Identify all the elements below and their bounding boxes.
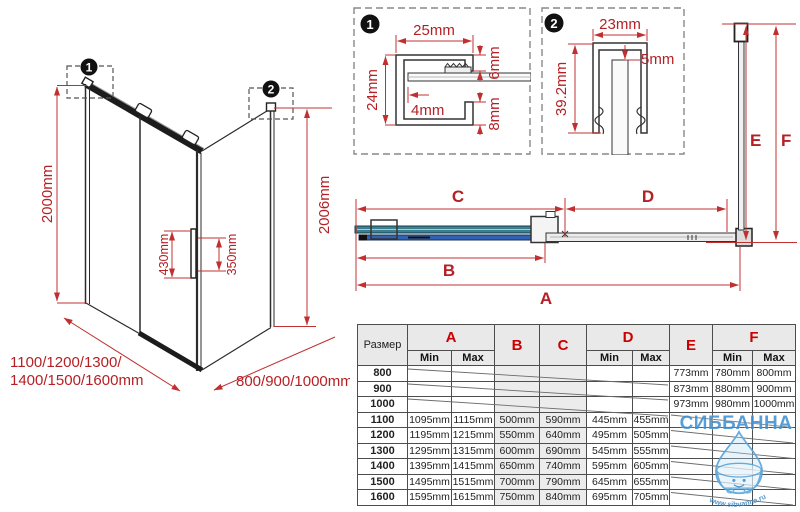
size-cell: 1100 bbox=[358, 412, 408, 428]
value-cell: 655mm bbox=[633, 474, 670, 490]
table-row: 11001095mm1115mm500mm590mm445mm455mm bbox=[358, 412, 796, 428]
value-cell: 690mm bbox=[540, 443, 587, 459]
value-cell: 1195mm bbox=[408, 428, 452, 444]
column-header-e: E bbox=[670, 325, 713, 366]
value-cell bbox=[713, 428, 753, 444]
value-cell bbox=[753, 443, 796, 459]
value-cell: 1295mm bbox=[408, 443, 452, 459]
value-cell: 695mm bbox=[587, 490, 633, 506]
size-cell: 1400 bbox=[358, 459, 408, 475]
value-cell: 1215mm bbox=[452, 428, 495, 444]
enclosure-structure bbox=[82, 77, 276, 371]
dim-c-label: C bbox=[452, 187, 464, 206]
value-cell bbox=[408, 381, 452, 397]
subheader-a-min: Min bbox=[408, 351, 452, 366]
value-cell: 980mm bbox=[713, 397, 753, 413]
value-cell: 1415mm bbox=[452, 459, 495, 475]
detail-callout-1: 1 25mm 24mm 6mm 8mm 4mm bbox=[353, 7, 531, 155]
value-cell: 590mm bbox=[540, 412, 587, 428]
size-table: Размер A B C D E F Min Max Min Max Min M… bbox=[357, 324, 796, 506]
detail-callout-2: 2 23mm 5mm 39.2mm bbox=[541, 7, 685, 155]
value-cell bbox=[452, 397, 495, 413]
value-cell: 1595mm bbox=[408, 490, 452, 506]
dim-a-label: A bbox=[540, 289, 552, 308]
value-cell: 740mm bbox=[540, 459, 587, 475]
value-cell bbox=[670, 412, 713, 428]
value-cell bbox=[587, 381, 633, 397]
value-cell: 495mm bbox=[587, 428, 633, 444]
value-cell bbox=[408, 397, 452, 413]
value-cell: 595mm bbox=[587, 459, 633, 475]
value-cell: 605mm bbox=[633, 459, 670, 475]
value-cell bbox=[540, 366, 587, 382]
value-cell: 1615mm bbox=[452, 490, 495, 506]
value-cell bbox=[633, 366, 670, 382]
value-cell bbox=[753, 474, 796, 490]
door-handle bbox=[191, 229, 196, 278]
value-cell bbox=[495, 397, 540, 413]
detail-1-drawing: 1 25mm 24mm 6mm 8mm 4mm bbox=[353, 7, 531, 155]
value-cell: 790mm bbox=[540, 474, 587, 490]
value-cell: 1115mm bbox=[452, 412, 495, 428]
table-row: 900873mm880mm900mm bbox=[358, 381, 796, 397]
value-cell bbox=[713, 490, 753, 506]
size-column-header: Размер bbox=[358, 325, 408, 366]
column-header-c: C bbox=[540, 325, 587, 366]
front-widths-line1: 1100/1200/1300/ bbox=[10, 354, 122, 371]
subheader-d-max: Max bbox=[633, 351, 670, 366]
value-cell bbox=[633, 381, 670, 397]
column-header-f: F bbox=[713, 325, 796, 351]
value-cell: 773mm bbox=[670, 366, 713, 382]
size-cell: 1500 bbox=[358, 474, 408, 490]
value-cell bbox=[587, 366, 633, 382]
value-cell bbox=[753, 428, 796, 444]
subheader-f-min: Min bbox=[713, 351, 753, 366]
detail-1-dim-top: 25mm bbox=[413, 22, 455, 39]
detail-1-dim-left: 24mm bbox=[364, 69, 381, 111]
value-cell: 750mm bbox=[495, 490, 540, 506]
value-cell: 1000mm bbox=[753, 397, 796, 413]
table-row: 16001595mm1615mm750mm840mm695mm705mm bbox=[358, 490, 796, 506]
detail-1-dim-inner: 4mm bbox=[411, 102, 444, 119]
value-cell bbox=[452, 381, 495, 397]
column-header-d: D bbox=[587, 325, 670, 351]
value-cell bbox=[670, 428, 713, 444]
shower-enclosure-spec-sheet: 2000mm 2006mm 430mm 350mm 1100/1200/1300… bbox=[0, 0, 800, 512]
dim-handle-inner-label: 350mm bbox=[225, 234, 239, 276]
dim-d-label: D bbox=[642, 187, 654, 206]
size-cell: 800 bbox=[358, 366, 408, 382]
value-cell bbox=[670, 459, 713, 475]
value-cell: 650mm bbox=[495, 459, 540, 475]
value-cell: 1495mm bbox=[408, 474, 452, 490]
value-cell bbox=[713, 412, 753, 428]
value-cell bbox=[540, 397, 587, 413]
table-row: 15001495mm1515mm700mm790mm645mm655mm bbox=[358, 474, 796, 490]
value-cell bbox=[495, 366, 540, 382]
value-cell: 973mm bbox=[670, 397, 713, 413]
front-widths-line2: 1400/1500/1600mm bbox=[10, 372, 143, 389]
detail-1-dim-right-top: 6mm bbox=[486, 46, 503, 79]
value-cell bbox=[495, 381, 540, 397]
value-cell bbox=[587, 397, 633, 413]
value-cell: 550mm bbox=[495, 428, 540, 444]
size-cell: 900 bbox=[358, 381, 408, 397]
table-row: 13001295mm1315mm600mm690mm545mm555mm bbox=[358, 443, 796, 459]
size-cell: 1200 bbox=[358, 428, 408, 444]
value-cell: 880mm bbox=[713, 381, 753, 397]
value-cell: 700mm bbox=[495, 474, 540, 490]
value-cell bbox=[670, 490, 713, 506]
value-cell: 445mm bbox=[587, 412, 633, 428]
value-cell: 780mm bbox=[713, 366, 753, 382]
value-cell: 640mm bbox=[540, 428, 587, 444]
subheader-d-min: Min bbox=[587, 351, 633, 366]
value-cell: 873mm bbox=[670, 381, 713, 397]
dim-f-label: F bbox=[781, 131, 791, 150]
value-cell bbox=[452, 366, 495, 382]
column-header-b: B bbox=[495, 325, 540, 366]
callout-1-number: 1 bbox=[86, 61, 93, 75]
value-cell: 1095mm bbox=[408, 412, 452, 428]
value-cell: 545mm bbox=[587, 443, 633, 459]
value-cell: 1315mm bbox=[452, 443, 495, 459]
value-cell: 455mm bbox=[633, 412, 670, 428]
value-cell bbox=[633, 397, 670, 413]
value-cell bbox=[670, 474, 713, 490]
isometric-drawing: 2000mm 2006mm 430mm 350mm 1100/1200/1300… bbox=[0, 0, 350, 420]
dimension-table: Размер A B C D E F Min Max Min Max Min M… bbox=[357, 324, 795, 506]
value-cell: 645mm bbox=[587, 474, 633, 490]
value-cell bbox=[540, 381, 587, 397]
size-cell: 1600 bbox=[358, 490, 408, 506]
value-cell: 500mm bbox=[495, 412, 540, 428]
detail-2-number: 2 bbox=[550, 16, 557, 31]
detail-2-dim-left: 39.2mm bbox=[553, 62, 570, 116]
value-cell: 555mm bbox=[633, 443, 670, 459]
value-cell bbox=[713, 443, 753, 459]
value-cell: 505mm bbox=[633, 428, 670, 444]
size-cell: 1300 bbox=[358, 443, 408, 459]
value-cell: 705mm bbox=[633, 490, 670, 506]
value-cell: 1515mm bbox=[452, 474, 495, 490]
detail-2-dim-gap: 5mm bbox=[641, 51, 674, 68]
dim-b-label: B bbox=[443, 261, 455, 280]
value-cell bbox=[713, 474, 753, 490]
detail-2-drawing: 2 23mm 5mm 39.2mm bbox=[541, 7, 685, 155]
value-cell: 800mm bbox=[753, 366, 796, 382]
dim-height-right-label: 2006mm bbox=[316, 176, 333, 234]
value-cell bbox=[713, 459, 753, 475]
detail-1-number: 1 bbox=[366, 17, 373, 32]
table-row: 12001195mm1215mm550mm640mm495mm505mm bbox=[358, 428, 796, 444]
value-cell: 600mm bbox=[495, 443, 540, 459]
table-row: 800773mm780mm800mm bbox=[358, 366, 796, 382]
value-cell: 900mm bbox=[753, 381, 796, 397]
dim-handle-outer-label: 430mm bbox=[157, 234, 171, 276]
callout-2-number: 2 bbox=[268, 83, 275, 97]
table-row: 14001395mm1415mm650mm740mm595mm605mm bbox=[358, 459, 796, 475]
value-cell bbox=[753, 490, 796, 506]
table-row: 1000973mm980mm1000mm bbox=[358, 397, 796, 413]
value-cell: 840mm bbox=[540, 490, 587, 506]
subheader-a-max: Max bbox=[452, 351, 495, 366]
value-cell bbox=[753, 459, 796, 475]
value-cell bbox=[670, 443, 713, 459]
subheader-f-max: Max bbox=[753, 351, 796, 366]
table-body: 800773mm780mm800mm900873mm880mm900mm1000… bbox=[358, 366, 796, 506]
value-cell bbox=[408, 366, 452, 382]
detail-2-dim-top: 23mm bbox=[599, 16, 641, 33]
column-header-a: A bbox=[408, 325, 495, 351]
dim-e-label: E bbox=[750, 131, 761, 150]
value-cell: 1395mm bbox=[408, 459, 452, 475]
detail-1-dim-right-bottom: 8mm bbox=[486, 97, 503, 130]
dim-height-left-label: 2000mm bbox=[39, 165, 56, 223]
size-cell: 1000 bbox=[358, 397, 408, 413]
value-cell bbox=[753, 412, 796, 428]
side-widths-label: 800/900/1000mm bbox=[236, 373, 350, 390]
